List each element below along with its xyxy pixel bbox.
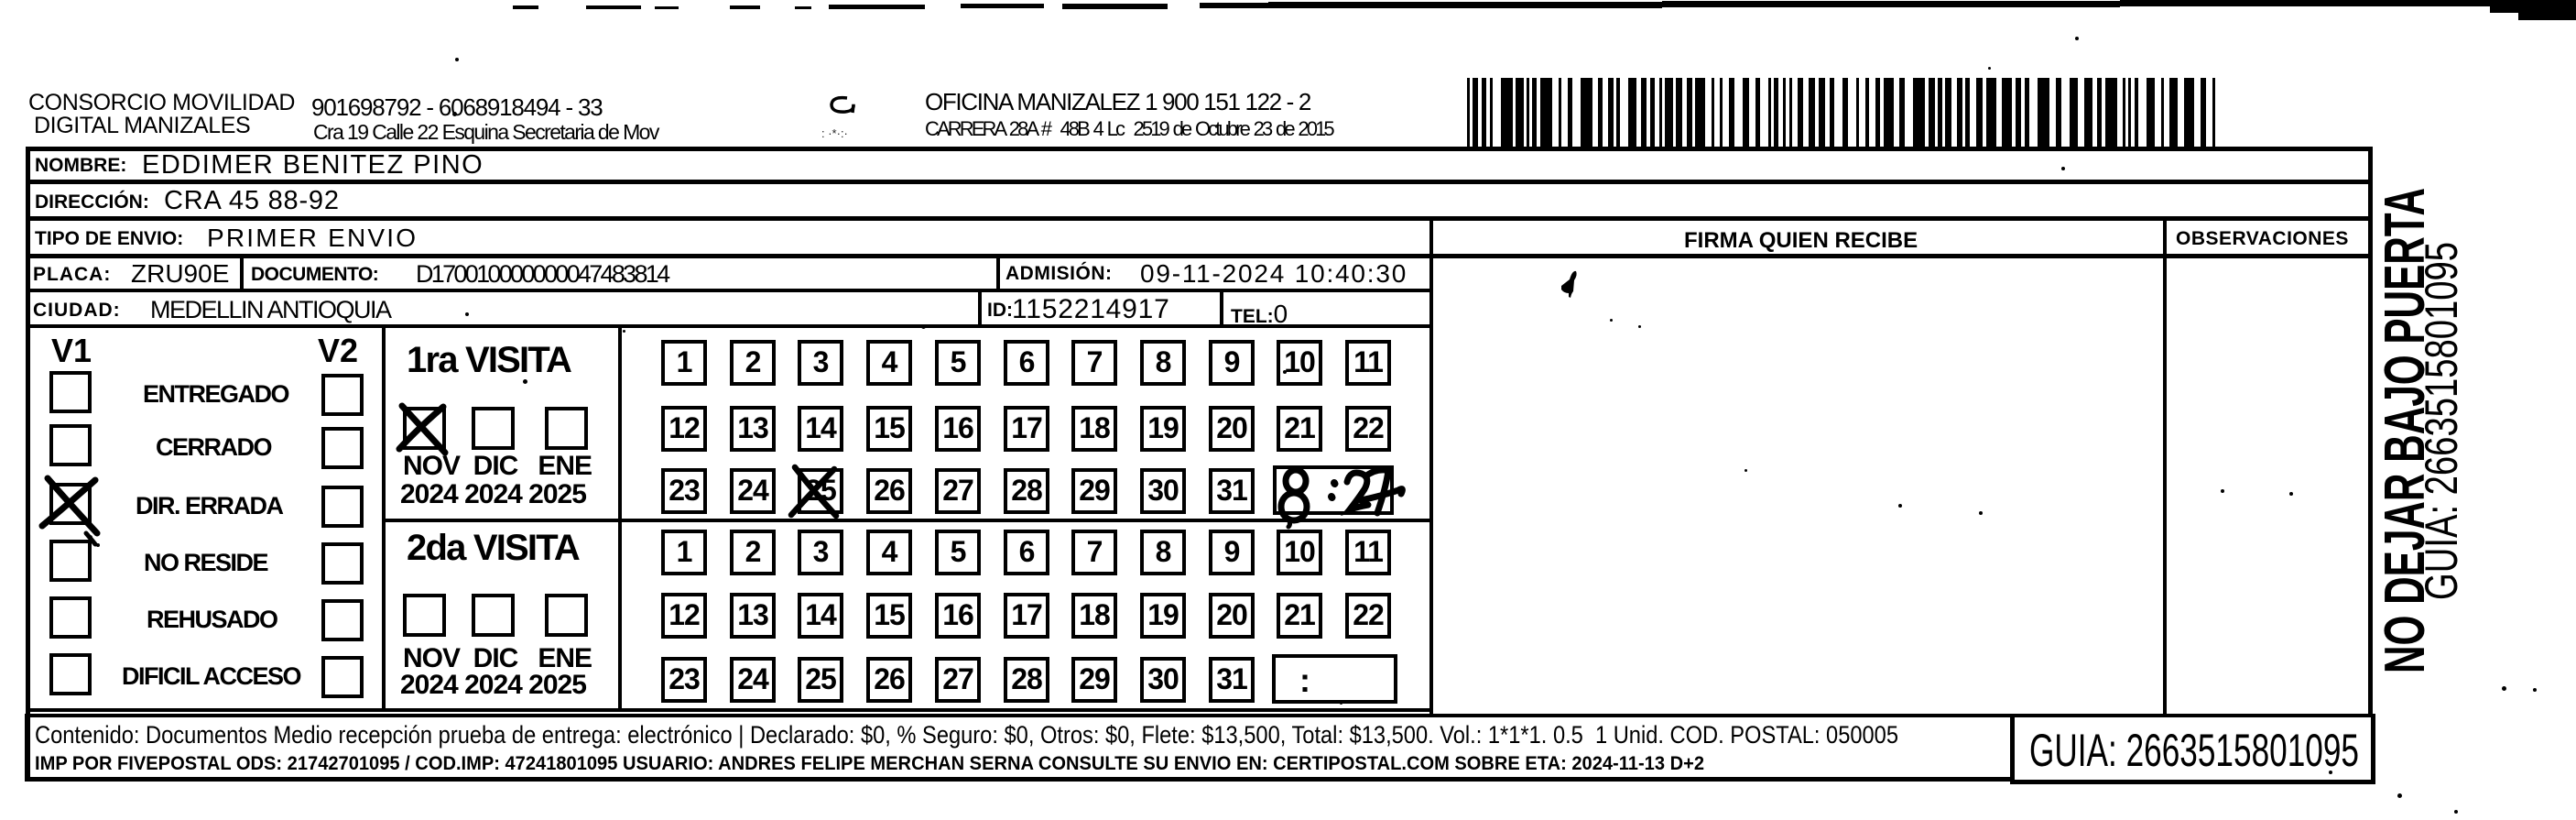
svg-text:Contenido: Documentos Medio re: Contenido: Documentos Medio recepción pr… <box>35 721 1898 749</box>
svg-text:GUIA: 2663515801095: GUIA: 2663515801095 <box>2029 725 2359 776</box>
svg-text:IMP POR FIVEPOSTAL ODS: 217427: IMP POR FIVEPOSTAL ODS: 21742701095 / CO… <box>35 753 1704 774</box>
svg-text:GUIA: 2663515801095: GUIA: 2663515801095 <box>2416 242 2467 600</box>
